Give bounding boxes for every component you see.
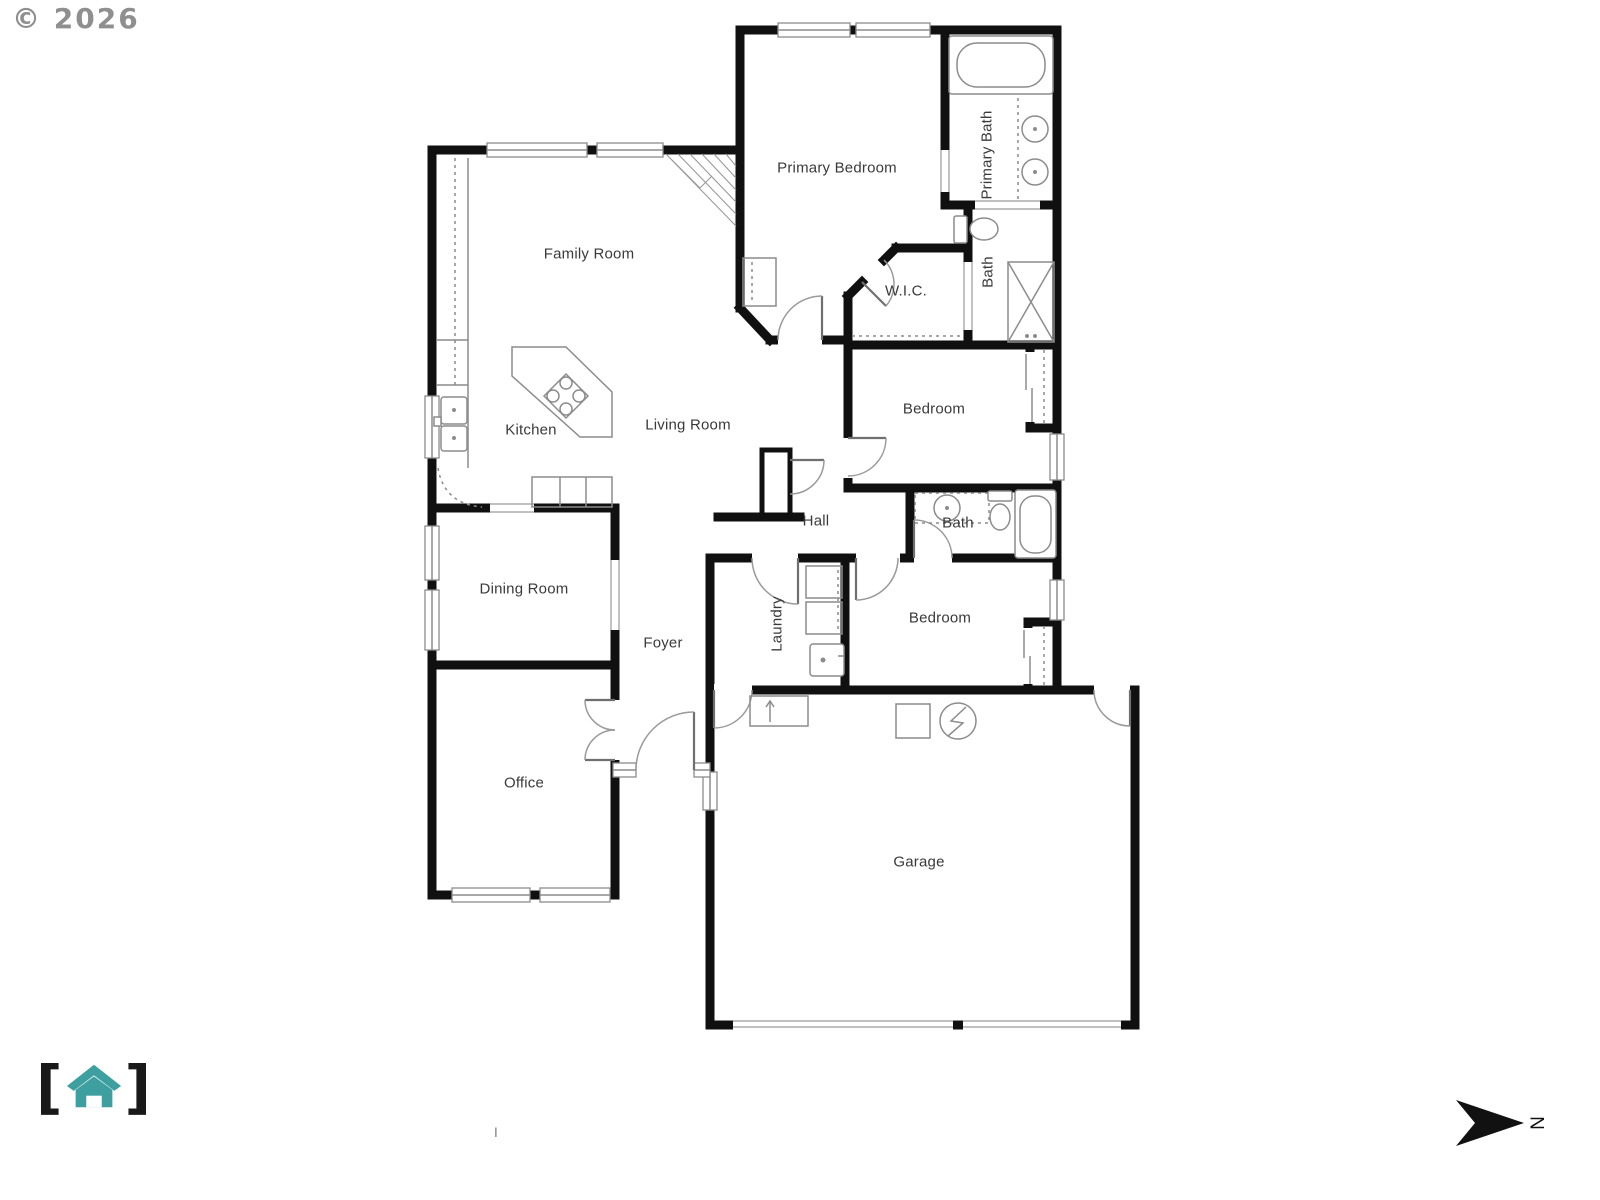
dryer-icon — [806, 602, 842, 634]
room-label-garage: Garage — [893, 854, 944, 871]
scale-mark: I — [495, 1124, 497, 1140]
hall-bath-fixtures — [915, 490, 1056, 558]
room-label-foyer: Foyer — [643, 635, 682, 652]
kitchen-fixtures — [434, 158, 612, 507]
brand-logo: [ ] — [36, 1062, 151, 1112]
garage-fixtures — [750, 696, 976, 739]
toilet-icon — [954, 216, 998, 243]
room-label-office: Office — [504, 775, 544, 792]
room-label-living-room: Living Room — [645, 417, 731, 434]
room-label-hall: Hall — [803, 513, 830, 530]
bathtub-icon — [949, 36, 1053, 94]
utility-sink-icon — [810, 644, 844, 676]
laundry-fixtures — [806, 566, 844, 676]
bathtub-icon — [1015, 490, 1056, 558]
room-label-bedroom-lower: Bedroom — [909, 610, 971, 627]
north-label: N — [1526, 1116, 1547, 1130]
primary-wc-fixtures — [852, 216, 1054, 342]
floorplan-page: © 2026 — [0, 0, 1600, 1200]
hall-closet — [762, 450, 790, 517]
room-label-primary-bath: Primary Bath — [979, 110, 996, 199]
room-label-wic: W.I.C. — [885, 283, 927, 300]
room-label-kitchen: Kitchen — [505, 422, 556, 439]
double-sink-icon — [1022, 116, 1048, 185]
room-label-family-room: Family Room — [544, 246, 635, 263]
room-label-dining-room: Dining Room — [480, 581, 569, 598]
logo-house-icon — [65, 1062, 123, 1112]
primary-bedroom-niche — [743, 258, 776, 306]
fireplace-hatch — [666, 154, 736, 226]
shower-icon — [1008, 262, 1054, 342]
north-arrow-icon: N — [1448, 1090, 1558, 1156]
toilet-icon — [988, 491, 1012, 530]
room-label-laundry: Laundry — [769, 596, 786, 652]
step-icon — [750, 696, 808, 726]
room-label-primary-wc: Bath — [980, 256, 997, 288]
washer-icon — [806, 566, 842, 598]
water-heater-icon — [896, 704, 930, 738]
logo-bracket-right: ] — [125, 1062, 152, 1112]
room-label-bedroom-upper: Bedroom — [903, 401, 965, 418]
room-label-hall-bath: Bath — [942, 515, 974, 532]
furnace-icon — [940, 703, 976, 739]
floorplan-drawing — [0, 0, 1600, 1200]
primary-bath-fixtures — [949, 36, 1053, 200]
room-label-primary-bedroom: Primary Bedroom — [777, 160, 897, 177]
logo-bracket-left: [ — [36, 1062, 63, 1112]
